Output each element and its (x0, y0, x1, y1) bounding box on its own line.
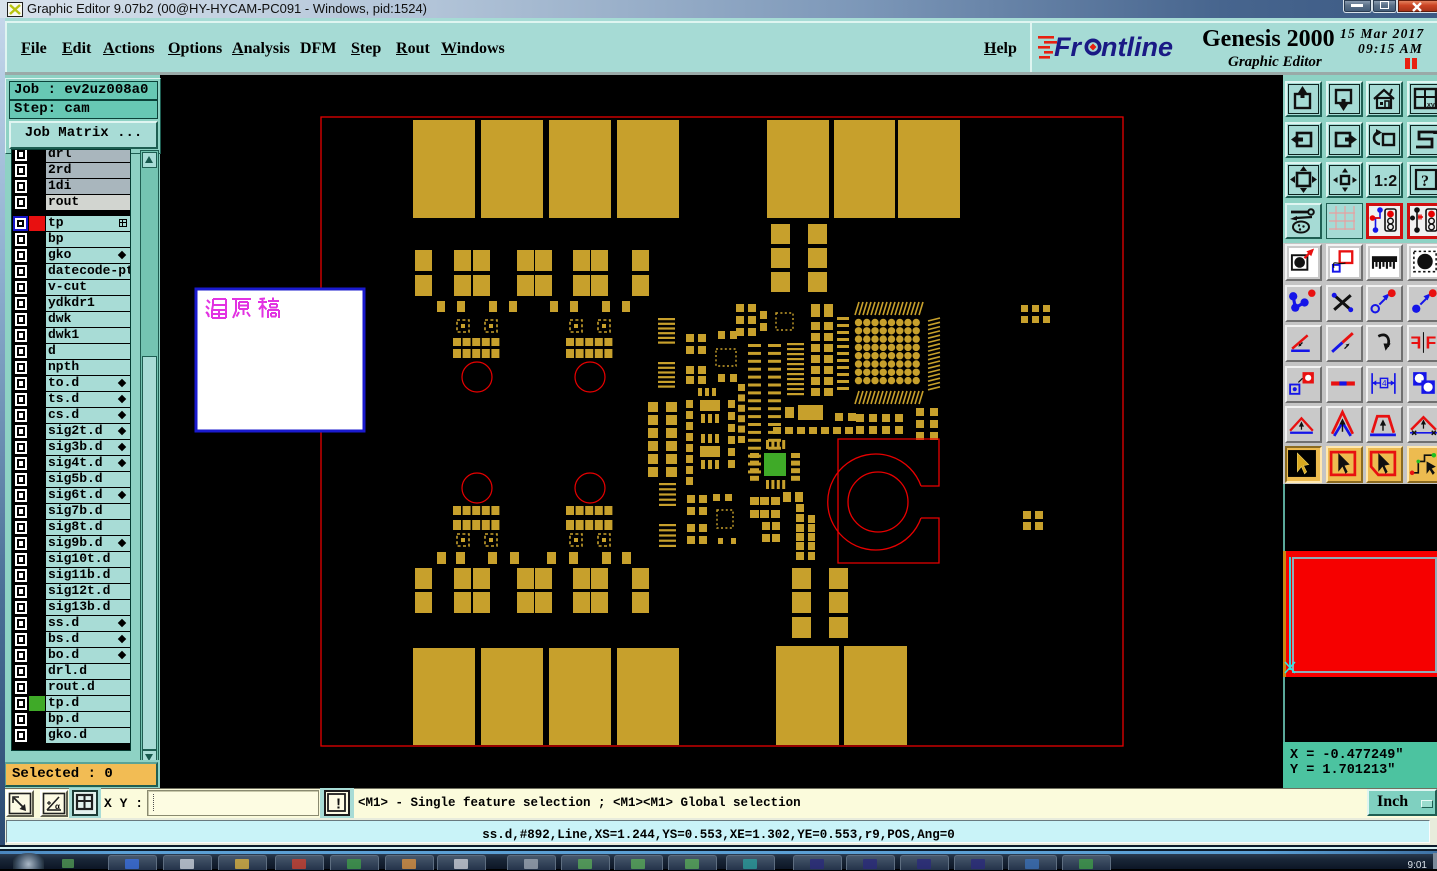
svg-text:α: α (55, 802, 60, 811)
svg-text:F: F (1410, 333, 1421, 353)
svg-text:ntline: ntline (1101, 32, 1173, 62)
svg-text:F: F (1425, 333, 1436, 353)
svg-text:!: ! (334, 797, 343, 814)
svg-text:4: 4 (1382, 379, 1387, 388)
svg-text:?: ? (1421, 173, 1429, 190)
svg-text:xy: xy (1427, 102, 1435, 109)
svg-text:Fr: Fr (1054, 32, 1082, 62)
svg-text:1:2: 1:2 (1374, 173, 1397, 190)
